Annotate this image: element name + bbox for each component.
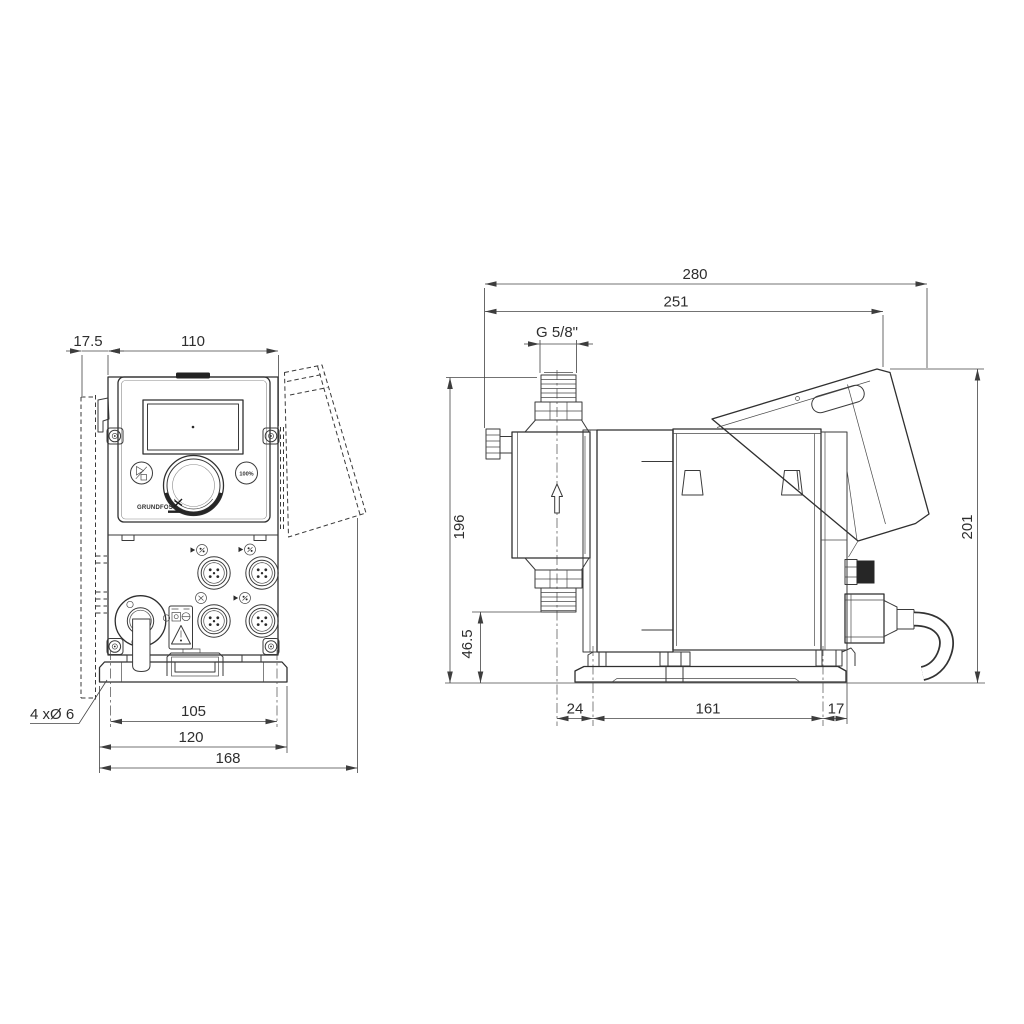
dim-label-wall-offset: 17.5 [73,333,102,350]
hundred-percent-label: 100% [239,472,253,478]
dim-label-front-to-first-hole: 24 [567,701,584,718]
dim-label-plate-width: 120 [178,729,203,746]
dim-label-hole-spacing: 161 [695,701,720,718]
display-dot [192,426,195,429]
brand-wordmark: GRUNDFOS [137,505,173,511]
power-cable-front [133,619,150,672]
dim-label-last-hole-to-rear: 17 [828,701,845,718]
dim-label-hole-spacing-h: 105 [181,703,206,720]
rear-stub-thread [857,561,874,583]
dim-label-body-width: 110 [181,333,205,350]
dim-label-connection-height: 46.5 [459,629,476,658]
dim-label-overall-depth: 280 [682,266,707,283]
dim-label-depth-to-cover: 251 [663,294,688,311]
plate-center-bracket [167,649,223,676]
dim-label-connection-thread: G 5/8" [536,324,578,341]
dim-label-mounting-holes: 4 xØ 6 [30,706,74,723]
drawing-canvas: 100% GRUNDFOS [0,0,1024,1024]
dim-label-overall-width: 168 [215,750,240,767]
dim-label-height-to-connection: 196 [451,514,468,539]
panel-top-tab [176,373,210,379]
technical-drawing: 100% GRUNDFOS [0,0,1024,1024]
dim-label-overall-height: 201 [959,514,976,539]
